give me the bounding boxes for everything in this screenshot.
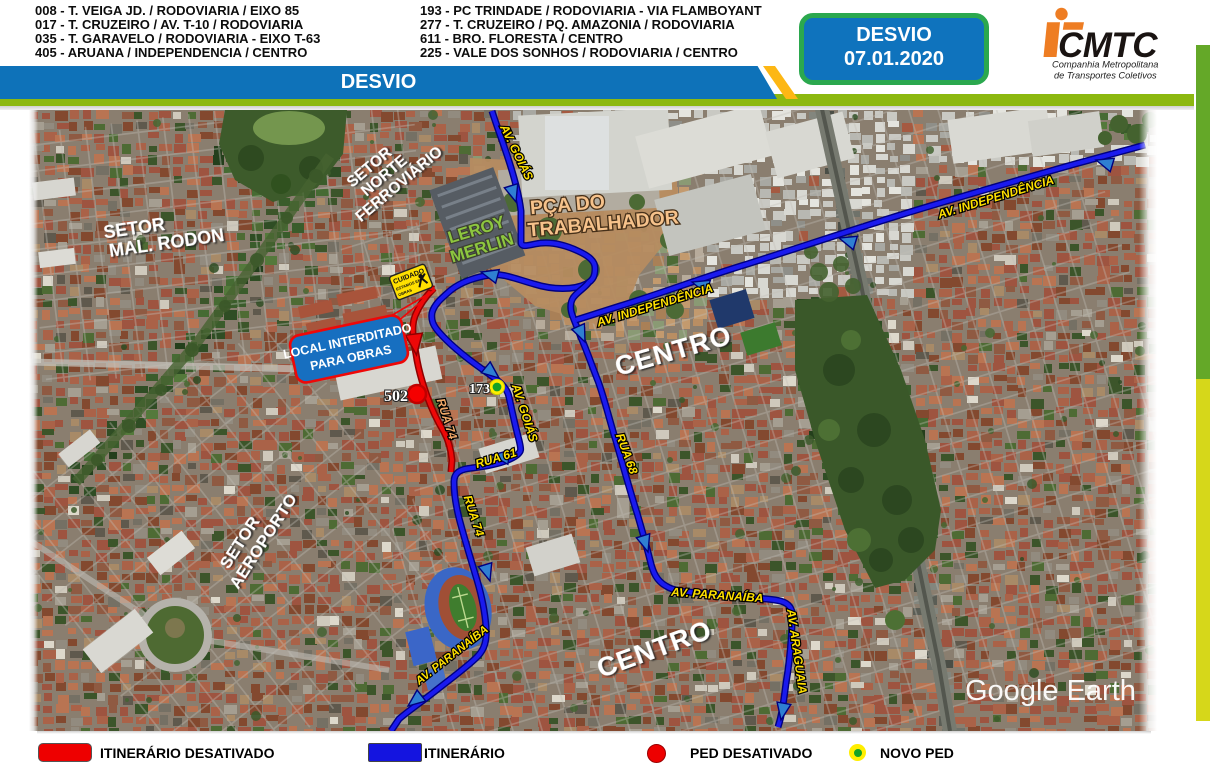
- svg-text:de Transportes Coletivos: de Transportes Coletivos: [1054, 71, 1157, 81]
- svg-text:Companhia Metropolitana: Companhia Metropolitana: [1052, 60, 1158, 70]
- svg-text:502: 502: [384, 388, 408, 405]
- svg-text:Google Earth: Google Earth: [965, 675, 1136, 707]
- svg-text:173: 173: [469, 382, 490, 397]
